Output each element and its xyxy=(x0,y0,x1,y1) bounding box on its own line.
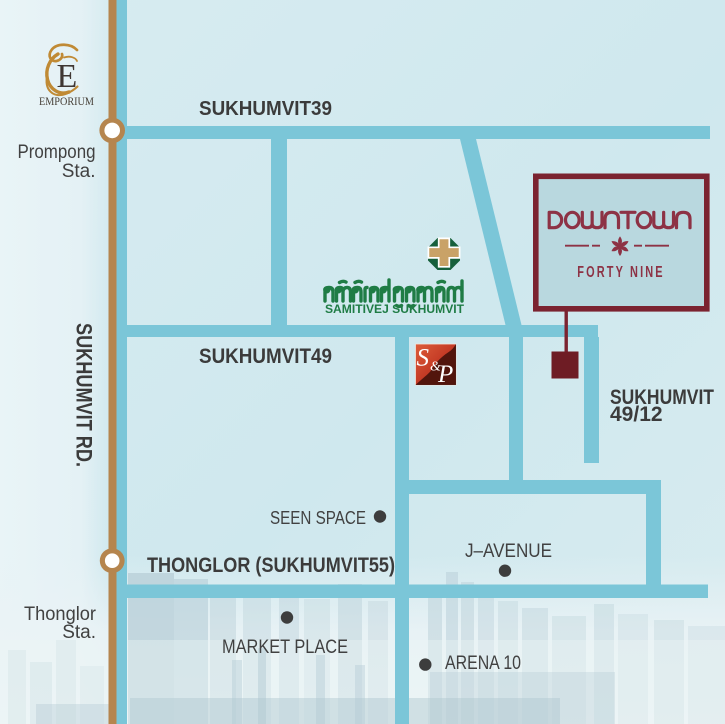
svg-text:Sta.: Sta. xyxy=(62,622,96,643)
svg-text:SEEN SPACE: SEEN SPACE xyxy=(270,508,366,528)
svg-text:SUKHUMVIT39: SUKHUMVIT39 xyxy=(199,98,332,120)
svg-text:SAMITIVEJ SUKHUMVIT: SAMITIVEJ SUKHUMVIT xyxy=(325,304,464,316)
svg-text:S: S xyxy=(417,345,430,372)
svg-text:P: P xyxy=(437,361,453,388)
svg-text:SUKHUMVIT RD.: SUKHUMVIT RD. xyxy=(72,323,97,467)
svg-text:ARENA 10: ARENA 10 xyxy=(445,653,521,674)
svg-text:Prompong: Prompong xyxy=(18,142,96,163)
svg-text:Sta.: Sta. xyxy=(62,161,96,182)
svg-text:FORTY NINE: FORTY NINE xyxy=(577,264,665,281)
svg-text:E: E xyxy=(57,58,78,95)
svg-text:SUKHUMVIT49: SUKHUMVIT49 xyxy=(199,345,332,368)
svg-text:J–AVENUE: J–AVENUE xyxy=(465,541,552,562)
svg-text:MARKET PLACE: MARKET PLACE xyxy=(222,637,348,658)
svg-text:THONGLOR (SUKHUMVIT55): THONGLOR (SUKHUMVIT55) xyxy=(147,554,395,577)
svg-text:EMPORIUM: EMPORIUM xyxy=(39,96,94,108)
svg-text:49/12: 49/12 xyxy=(610,403,663,426)
